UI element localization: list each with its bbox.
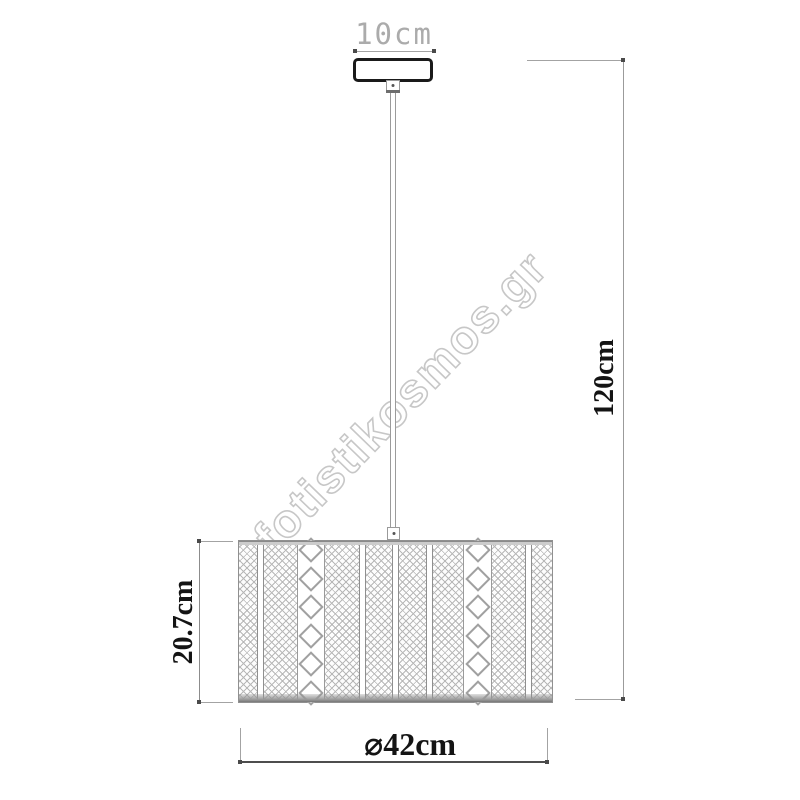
shade-height-dimension-label: 20.7cm <box>170 562 198 682</box>
shade-seam <box>392 541 399 702</box>
drop-height-dimension-line <box>623 60 624 699</box>
diamond-ornament <box>298 537 323 562</box>
dimension-terminator <box>621 697 625 701</box>
canopy-connector <box>386 80 400 93</box>
suspension-rod <box>390 93 396 527</box>
dimension-terminator <box>197 539 201 543</box>
shade-diameter-extension-line-right <box>547 728 548 762</box>
shade-seam <box>426 541 433 702</box>
shade-diameter-dimension-label: ⌀42cm <box>330 729 490 759</box>
canopy-width-dimension-line <box>355 51 434 52</box>
shade-connector <box>387 527 400 540</box>
diamond-ornament <box>465 652 490 677</box>
pendant-lamp-dimension-diagram: fotistikosmos.gr 10cm 20.7cm 120cm ⌀42cm <box>0 0 800 800</box>
shade-seam <box>359 541 366 702</box>
drum-lamp-shade <box>238 540 553 703</box>
diamond-ornament-strip <box>463 541 492 702</box>
ceiling-canopy <box>353 58 433 82</box>
diamond-ornament-strip <box>297 541 325 702</box>
shade-diameter-extension-line-left <box>240 728 241 762</box>
diamond-ornament <box>298 623 323 648</box>
connector-screw-dot <box>392 532 395 535</box>
dimension-terminator <box>353 49 357 53</box>
diamond-ornament <box>465 594 490 619</box>
dimension-terminator <box>545 760 549 764</box>
dimension-terminator <box>197 700 201 704</box>
diamond-ornament <box>465 623 490 648</box>
shade-seam <box>257 541 264 702</box>
connector-screw-dot <box>392 84 395 87</box>
diamond-ornament <box>465 537 490 562</box>
shade-seam <box>525 541 532 702</box>
diamond-ornament <box>298 594 323 619</box>
canopy-width-dimension-label: 10cm <box>344 18 444 50</box>
dimension-terminator <box>238 760 242 764</box>
diamond-ornament <box>465 680 490 705</box>
drop-height-extension-line-bottom <box>575 699 623 700</box>
dimension-terminator <box>432 49 436 53</box>
shade-height-extension-line-bottom <box>199 702 233 703</box>
diamond-ornament <box>465 566 490 591</box>
shade-height-extension-line-top <box>199 541 233 542</box>
drop-height-dimension-label: 120cm <box>591 328 619 428</box>
diamond-ornament <box>298 566 323 591</box>
diamond-ornament <box>298 680 323 705</box>
diamond-ornament <box>298 652 323 677</box>
dimension-terminator <box>621 58 625 62</box>
drop-height-extension-line-top <box>527 60 623 61</box>
